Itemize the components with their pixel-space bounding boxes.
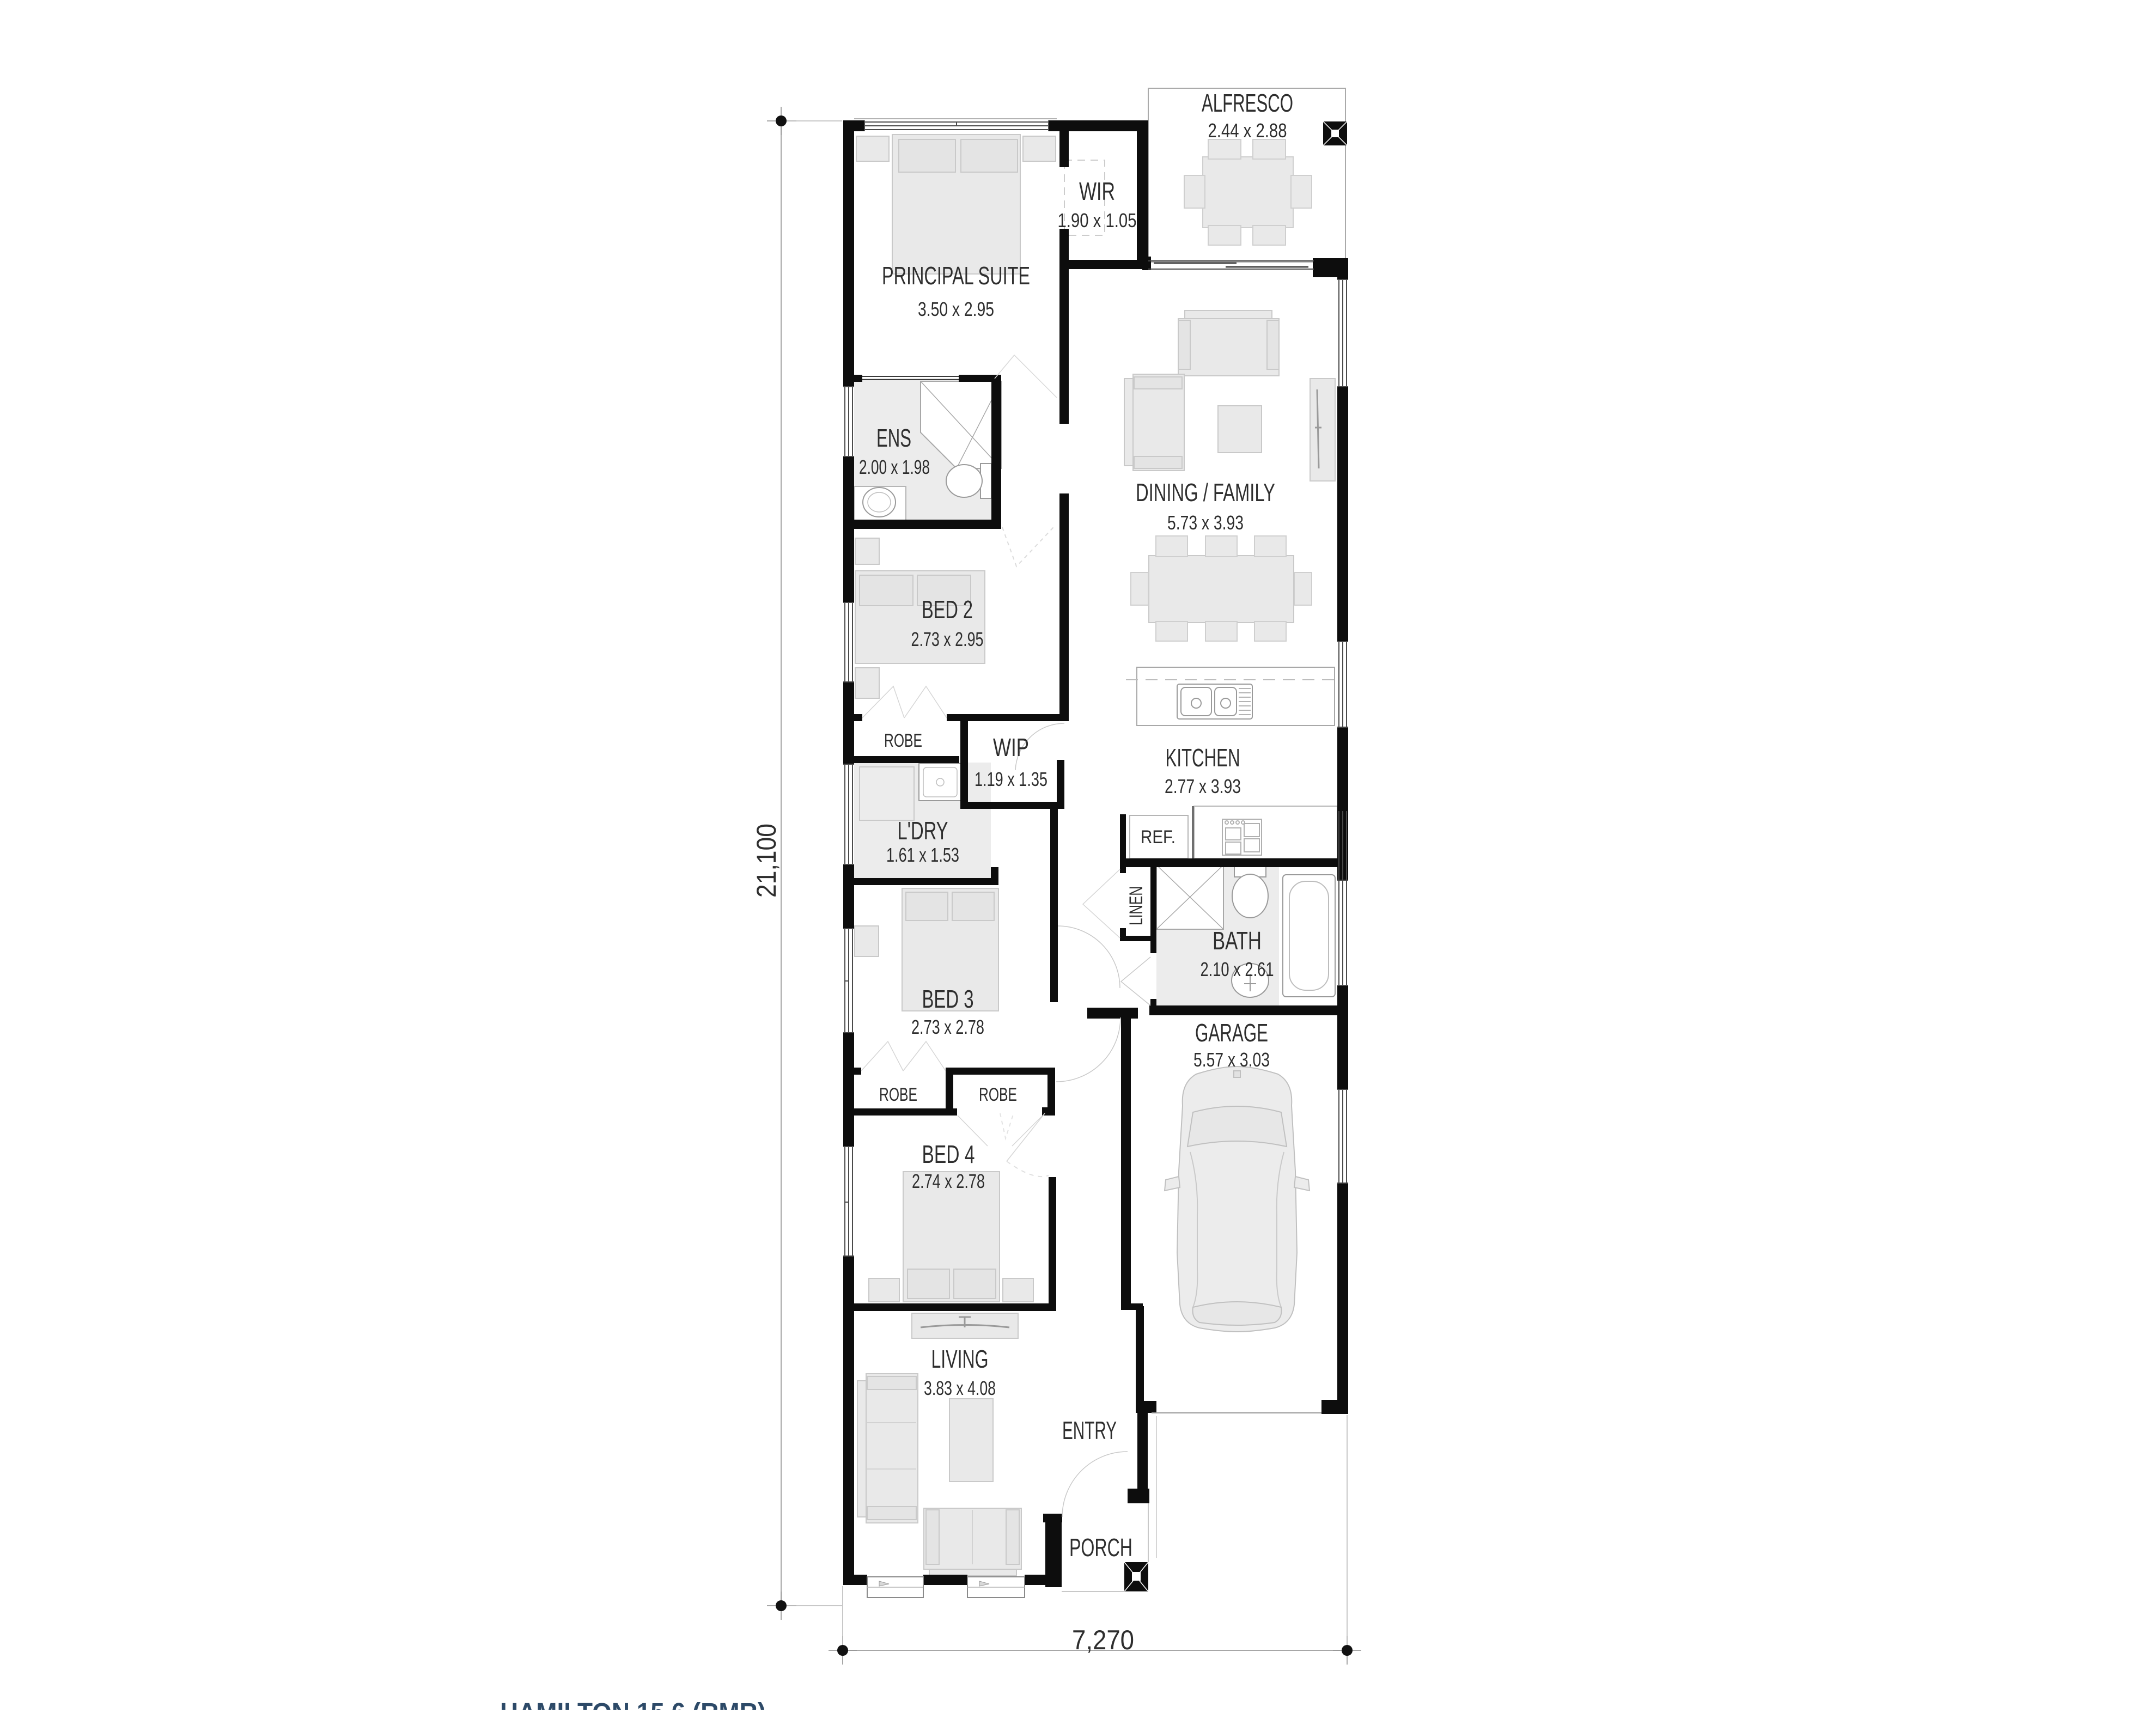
svg-text:1.61 x 1.53: 1.61 x 1.53 [886,844,959,866]
svg-text:BED 4: BED 4 [922,1140,975,1168]
svg-text:2.73 x 2.78: 2.73 x 2.78 [911,1016,984,1038]
svg-text:7,270: 7,270 [1072,1625,1134,1655]
svg-text:REF.: REF. [1141,827,1176,848]
svg-text:LINEN: LINEN [1126,886,1147,925]
svg-text:GARAGE: GARAGE [1195,1019,1268,1047]
svg-text:ENS: ENS [876,424,911,452]
svg-text:3.50 x 2.95: 3.50 x 2.95 [918,298,994,320]
svg-text:2.74 x 2.78: 2.74 x 2.78 [912,1170,985,1192]
svg-text:1.90 x 1.05: 1.90 x 1.05 [1058,209,1137,231]
svg-text:BED 3: BED 3 [922,985,974,1013]
svg-text:BED 2: BED 2 [922,595,973,624]
svg-text:WIR: WIR [1079,177,1115,205]
svg-text:PRINCIPAL SUITE: PRINCIPAL SUITE [882,261,1030,290]
svg-text:2.10 x 2.61: 2.10 x 2.61 [1201,958,1274,980]
svg-text:ROBE: ROBE [879,1084,917,1105]
svg-text:PORCH: PORCH [1069,1533,1132,1562]
svg-text:3.83 x 4.08: 3.83 x 4.08 [924,1377,996,1399]
svg-text:L'DRY: L'DRY [898,816,948,845]
svg-text:ALFRESCO: ALFRESCO [1202,89,1293,117]
svg-text:2.00 x 1.98: 2.00 x 1.98 [859,456,930,478]
svg-text:2.73 x 2.95: 2.73 x 2.95 [911,628,984,650]
svg-text:2.44 x 2.88: 2.44 x 2.88 [1208,119,1287,142]
svg-text:ROBE: ROBE [979,1084,1017,1105]
svg-text:ROBE: ROBE [884,730,922,751]
svg-text:2.77 x 3.93: 2.77 x 3.93 [1165,775,1241,797]
svg-text:5.73 x 3.93: 5.73 x 3.93 [1167,511,1244,534]
svg-text:KITCHEN: KITCHEN [1166,743,1240,772]
svg-text:21,100: 21,100 [751,824,782,898]
svg-text:LIVING: LIVING [931,1345,989,1373]
svg-text:5.57 x 3.03: 5.57 x 3.03 [1193,1049,1270,1071]
svg-text:ENTRY: ENTRY [1062,1416,1117,1444]
svg-text:WIP: WIP [993,733,1029,761]
svg-text:1.19 x 1.35: 1.19 x 1.35 [975,768,1047,790]
svg-text:BATH: BATH [1213,926,1262,955]
svg-text:DINING / FAMILY: DINING / FAMILY [1136,478,1275,507]
